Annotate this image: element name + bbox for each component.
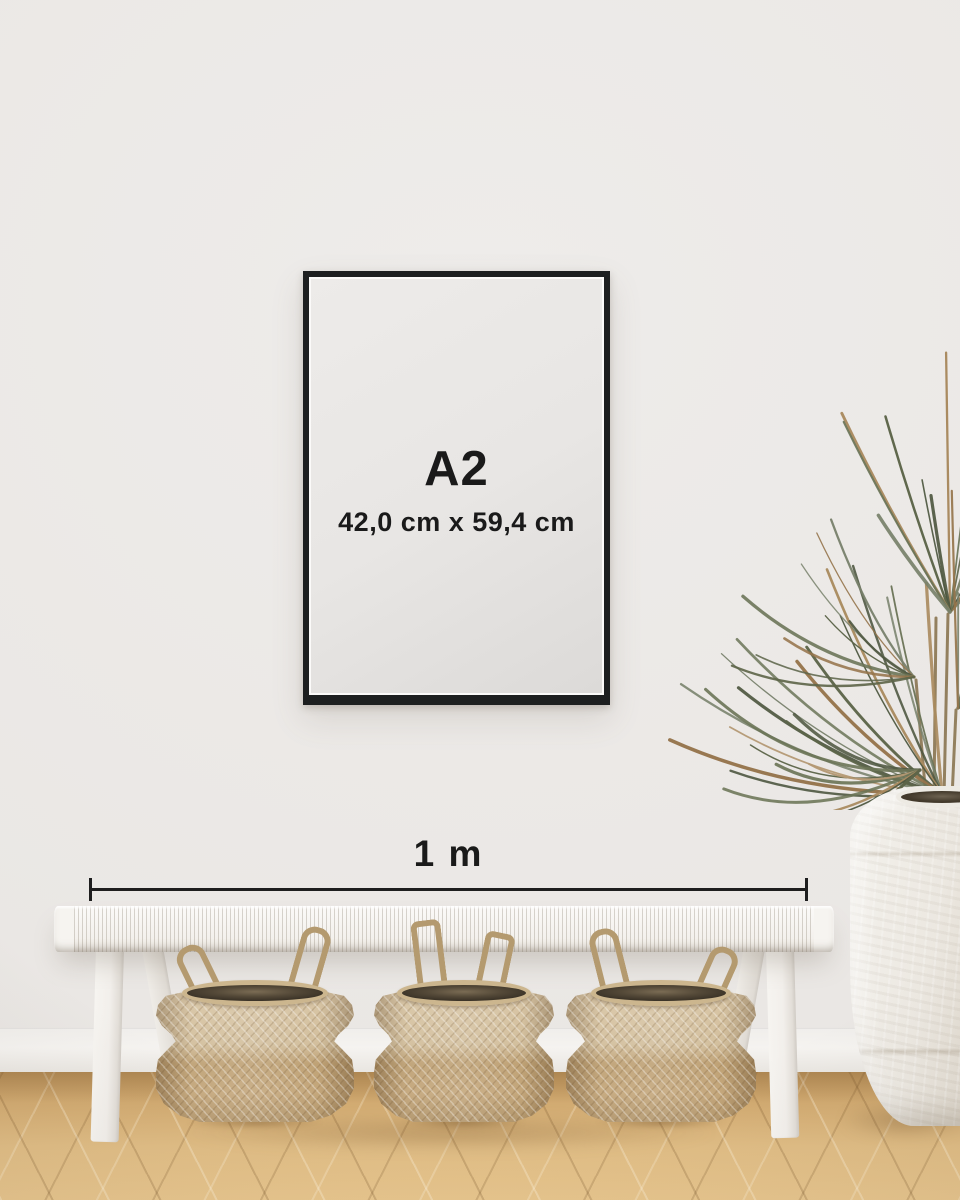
palm-plant — [608, 312, 960, 810]
bench-leg-front-left — [91, 948, 124, 1143]
basket-rim — [397, 980, 530, 1006]
basket-rim — [591, 980, 732, 1006]
poster-frame: A2 42,0 cm x 59,4 cm — [303, 271, 610, 705]
scale-label: 1 m — [89, 835, 808, 872]
bench-seat — [54, 906, 834, 952]
bench-leg-front-right — [766, 948, 799, 1139]
dimensions-label: 42,0 cm x 59,4 cm — [311, 509, 602, 536]
size-label: A2 — [311, 445, 602, 494]
vase-mouth — [896, 786, 960, 808]
floor-vase — [850, 786, 960, 1126]
storage-basket-1 — [156, 966, 354, 1122]
scale-bar — [89, 888, 808, 891]
storage-basket-2 — [374, 966, 554, 1122]
basket-body — [566, 992, 756, 1122]
poster: A2 42,0 cm x 59,4 cm — [311, 279, 602, 693]
scale-tick-right — [805, 878, 808, 901]
basket-rim — [182, 980, 329, 1006]
scale-tick-left — [89, 878, 92, 901]
size-guide-scene: A2 42,0 cm x 59,4 cm 1 m — [0, 0, 960, 1200]
basket-body — [374, 992, 554, 1122]
storage-basket-3 — [566, 966, 756, 1122]
basket-body — [156, 992, 354, 1122]
